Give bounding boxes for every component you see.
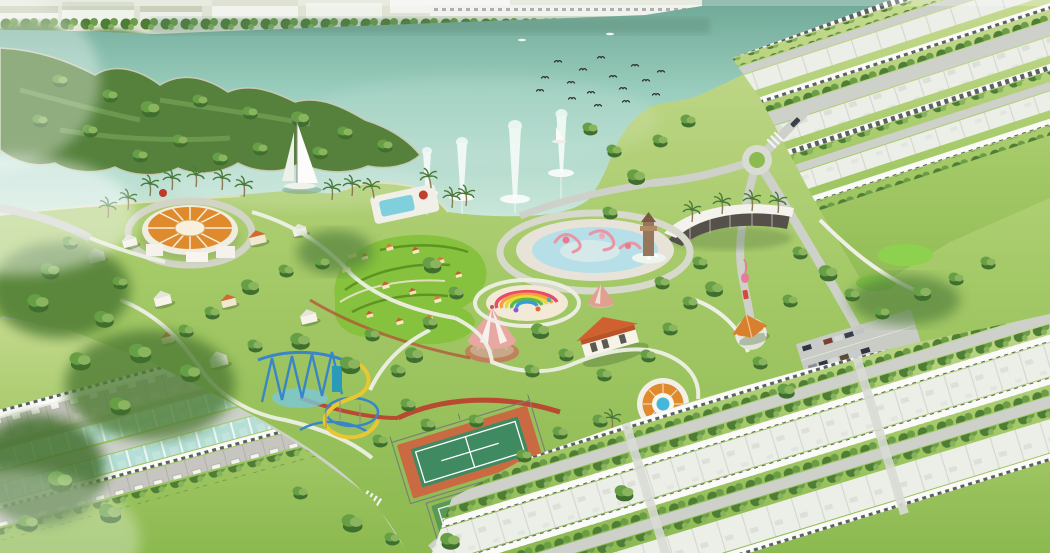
roundabout: [742, 145, 772, 175]
aerial-render: [0, 0, 1050, 553]
screenshot-root: [0, 0, 1050, 553]
rainbow-playground: [486, 285, 568, 321]
